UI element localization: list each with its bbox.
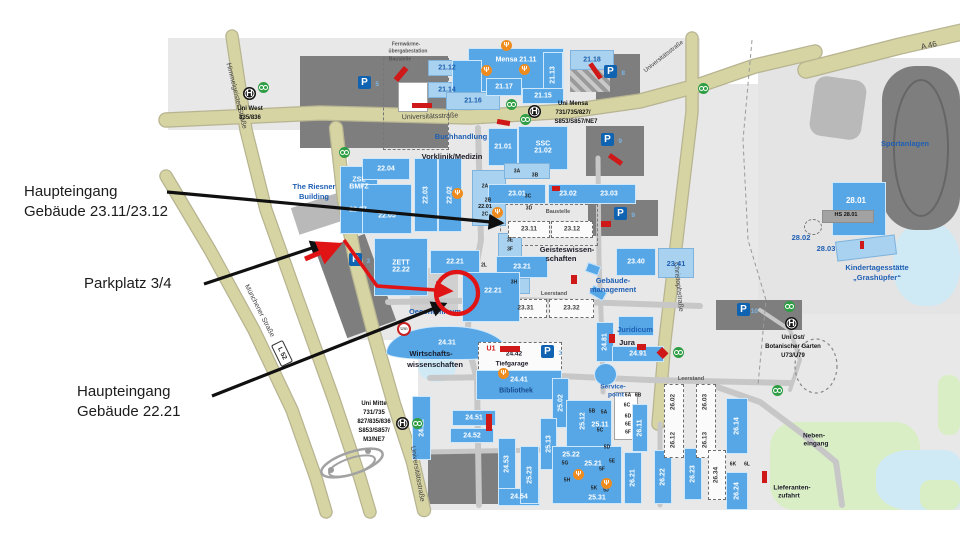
annotation-arrows bbox=[0, 0, 960, 540]
slide-canvas: Mensa 21.1121.1321.1821.1221.1421.1621.1… bbox=[0, 0, 960, 540]
